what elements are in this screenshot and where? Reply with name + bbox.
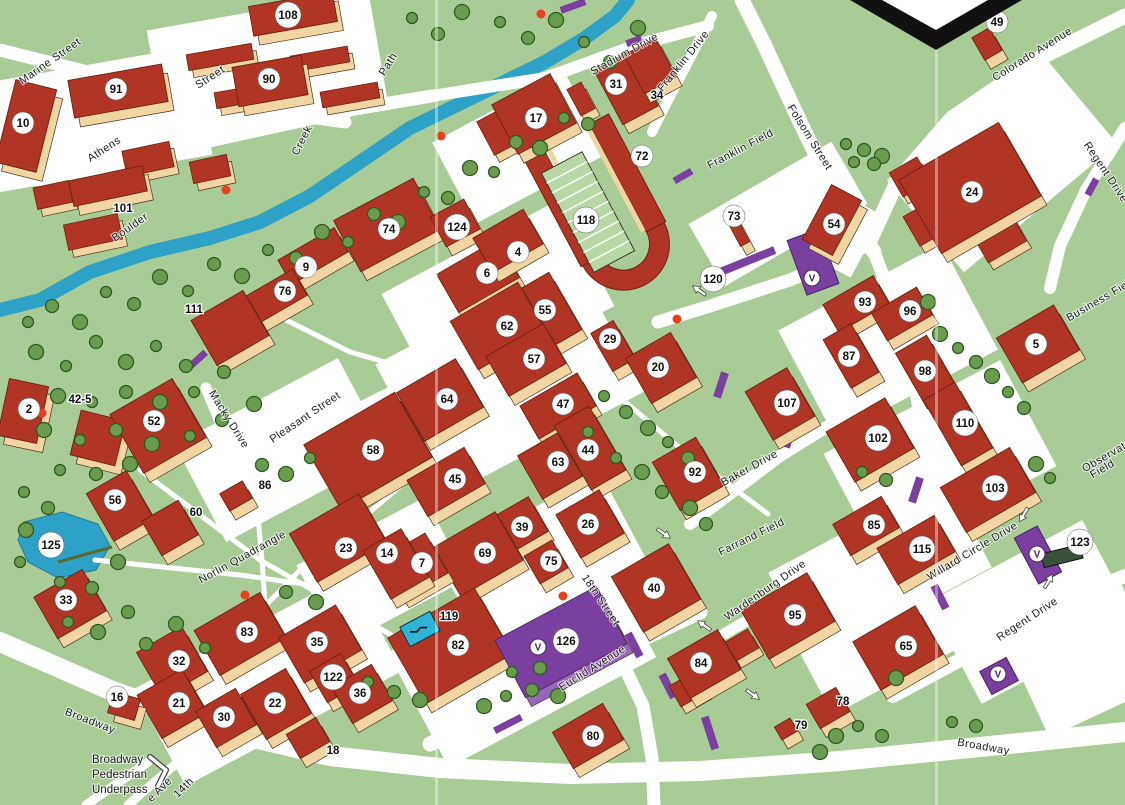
building-number-69: 69 — [479, 548, 492, 560]
building-number-54: 54 — [828, 219, 841, 231]
red-dot-marker — [222, 186, 231, 195]
tree-icon — [857, 467, 868, 478]
building-number-55: 55 — [539, 305, 552, 317]
building-number-47: 47 — [557, 399, 570, 411]
tree-icon — [368, 208, 381, 221]
building-number-20: 20 — [652, 362, 665, 374]
building-number-124: 124 — [447, 222, 467, 234]
building-number-79: 79 — [795, 720, 808, 732]
underpass-label-line: Underpass — [92, 784, 148, 796]
tree-icon — [218, 366, 231, 379]
building-number-29: 29 — [604, 334, 617, 346]
tree-icon — [73, 315, 88, 330]
building-number-75: 75 — [545, 556, 558, 568]
map-fold — [935, 0, 938, 805]
building-number-85: 85 — [868, 520, 881, 532]
tree-icon — [185, 431, 196, 442]
tree-icon — [841, 139, 852, 150]
tree-icon — [663, 437, 674, 448]
tree-icon — [101, 287, 112, 298]
tree-icon — [279, 467, 294, 482]
building-number-2: 2 — [26, 404, 32, 416]
building-number-83: 83 — [241, 627, 254, 639]
tree-icon — [970, 356, 983, 369]
tree-icon — [145, 437, 160, 452]
tree-icon — [620, 406, 633, 419]
building-number-103: 103 — [985, 483, 1004, 495]
tree-icon — [151, 341, 162, 352]
building-number-10: 10 — [17, 118, 30, 130]
tree-icon — [970, 720, 983, 733]
tree-icon — [200, 643, 211, 654]
red-dot-marker — [241, 591, 250, 600]
building-number-23: 23 — [340, 543, 353, 555]
building-number-24: 24 — [966, 187, 979, 199]
building-number-125: 125 — [41, 540, 61, 552]
tree-icon — [61, 361, 72, 372]
underpass-label-line: Pedestrian — [92, 769, 147, 781]
building-number-118: 118 — [577, 215, 596, 227]
tree-icon — [683, 501, 698, 516]
tree-icon — [23, 317, 34, 328]
tree-icon — [933, 327, 948, 342]
tree-icon — [169, 617, 184, 632]
tree-icon — [549, 13, 564, 28]
tree-icon — [247, 397, 262, 412]
building-number-26: 26 — [582, 519, 595, 531]
building-number-49: 49 — [991, 17, 1004, 29]
tree-icon — [42, 502, 55, 515]
building-number-35: 35 — [311, 637, 324, 649]
tree-icon — [37, 423, 52, 438]
tree-icon — [858, 144, 871, 157]
tree-icon — [29, 345, 44, 360]
building-number-108: 108 — [278, 10, 298, 22]
tree-icon — [305, 453, 316, 464]
tree-icon — [880, 474, 893, 487]
building-number-33: 33 — [60, 595, 73, 607]
tree-icon — [128, 298, 141, 311]
tree-icon — [19, 487, 30, 498]
parking-v-letter: V — [1034, 550, 1041, 561]
building-number-40: 40 — [648, 583, 661, 595]
building-number-98: 98 — [919, 366, 932, 378]
tree-icon — [876, 730, 889, 743]
tree-icon — [849, 157, 860, 168]
tree-icon — [641, 421, 656, 436]
tree-icon — [463, 161, 478, 176]
tree-icon — [75, 435, 86, 446]
tree-icon — [189, 387, 200, 398]
tree-icon — [90, 336, 103, 349]
parking-v-letter: V — [995, 670, 1002, 681]
building-number-78: 78 — [837, 696, 850, 708]
tree-icon — [122, 606, 135, 619]
red-dot-marker — [559, 592, 568, 601]
tree-icon — [86, 582, 99, 595]
tree-icon — [442, 192, 455, 205]
tree-icon — [208, 258, 221, 271]
tree-icon — [15, 557, 26, 568]
tree-icon — [583, 427, 594, 438]
tree-icon — [180, 360, 193, 373]
tree-icon — [533, 141, 548, 156]
building-number-101: 101 — [113, 203, 133, 215]
tree-icon — [91, 625, 106, 640]
building-number-63: 63 — [552, 457, 565, 469]
building-number-123: 123 — [1070, 537, 1089, 549]
tree-icon — [599, 391, 610, 402]
red-dot-marker — [673, 315, 682, 324]
tree-icon — [700, 518, 713, 531]
tree-icon — [153, 270, 168, 285]
map-fold — [435, 0, 438, 805]
campus-map-canvas: VVVV109190108101741241731347349245497611… — [0, 0, 1125, 805]
tree-icon — [407, 13, 418, 24]
tree-icon — [868, 158, 881, 171]
building-number-7: 7 — [419, 558, 425, 570]
building-number-62: 62 — [501, 321, 514, 333]
tree-icon — [419, 187, 430, 198]
tree-icon — [119, 355, 134, 370]
tree-icon — [235, 269, 250, 284]
red-dot-marker — [537, 10, 546, 19]
building-number-87: 87 — [843, 351, 856, 363]
tree-icon — [388, 686, 401, 699]
tree-icon — [889, 671, 904, 686]
tree-icon — [110, 424, 123, 437]
tree-icon — [46, 300, 59, 313]
building-number-31: 31 — [610, 79, 623, 91]
tree-icon — [343, 237, 354, 248]
tree-icon — [947, 717, 958, 728]
building-number-73: 73 — [728, 211, 741, 223]
building-number-21: 21 — [173, 698, 186, 710]
tree-icon — [263, 245, 274, 256]
building-number-110: 110 — [956, 418, 975, 430]
building-number-122: 122 — [323, 672, 342, 684]
tree-icon — [579, 37, 590, 48]
building-number-102: 102 — [868, 433, 887, 445]
tree-icon — [140, 638, 153, 651]
building-number-86: 86 — [259, 480, 272, 492]
building-number-45: 45 — [449, 474, 462, 486]
building-number-90: 90 — [263, 74, 276, 86]
building-number-60: 60 — [190, 507, 203, 519]
building-number-64: 64 — [441, 394, 454, 406]
building-number-17: 17 — [530, 113, 543, 125]
tree-icon — [256, 459, 269, 472]
building-number-120: 120 — [703, 274, 722, 286]
building-number-56: 56 — [109, 495, 122, 507]
tree-icon — [111, 555, 126, 570]
tree-icon — [55, 577, 66, 588]
building-number-74: 74 — [383, 224, 396, 236]
building-number-39: 39 — [516, 522, 529, 534]
tree-icon — [315, 225, 330, 240]
tree-icon — [813, 745, 828, 760]
building-number-95: 95 — [789, 610, 802, 622]
tree-icon — [477, 699, 492, 714]
tree-icon — [526, 684, 539, 697]
underpass-label-line: Broadway — [92, 754, 143, 766]
tree-icon — [455, 5, 470, 20]
building-number-30: 30 — [218, 712, 231, 724]
building-number-6: 6 — [484, 268, 490, 280]
building-number-92: 92 — [689, 467, 702, 479]
tree-icon — [522, 32, 535, 45]
building-number-4: 4 — [515, 247, 522, 259]
building-number-57: 57 — [528, 354, 541, 366]
building-number-82: 82 — [452, 640, 465, 652]
tree-icon — [1003, 387, 1014, 398]
tree-icon — [63, 617, 74, 628]
building-number-107: 107 — [777, 398, 796, 410]
tree-icon — [153, 395, 168, 410]
building-number-93: 93 — [859, 297, 872, 309]
tree-icon — [309, 595, 324, 610]
tree-icon — [953, 343, 964, 354]
tree-icon — [51, 389, 66, 404]
tree-icon — [120, 386, 133, 399]
campus-map: VVVV109190108101741241731347349245497611… — [0, 0, 1125, 805]
building-number-16: 16 — [111, 692, 124, 704]
building-number-84: 84 — [695, 658, 708, 670]
building-number-18: 18 — [327, 745, 340, 757]
building-number-36: 36 — [354, 688, 367, 700]
building-number-32: 32 — [173, 656, 186, 668]
tree-icon — [280, 586, 293, 599]
building-number-126: 126 — [556, 636, 575, 648]
building-number-52: 52 — [148, 416, 161, 428]
building-number-65: 65 — [900, 641, 913, 653]
tree-icon — [123, 457, 138, 472]
tree-icon — [534, 662, 547, 675]
tree-icon — [853, 721, 864, 732]
building-number-119: 119 — [440, 611, 459, 623]
parking-v-letter: V — [809, 274, 816, 285]
tree-icon — [631, 21, 646, 36]
building-number-76: 76 — [279, 286, 292, 298]
tree-icon — [183, 286, 194, 297]
building-number-72: 72 — [636, 151, 649, 163]
building-number-22: 22 — [269, 698, 282, 710]
building-number-96: 96 — [904, 306, 917, 318]
tree-icon — [501, 691, 512, 702]
building-number-44: 44 — [582, 445, 595, 457]
tree-icon — [635, 465, 650, 480]
tree-icon — [489, 167, 500, 178]
tree-icon — [55, 465, 66, 476]
tree-icon — [985, 369, 1000, 384]
tree-icon — [656, 486, 669, 499]
tree-icon — [90, 468, 103, 481]
tree-icon — [495, 17, 506, 28]
tree-icon — [582, 118, 595, 131]
building-number-58: 58 — [367, 445, 380, 457]
tree-icon — [510, 136, 523, 149]
tree-icon — [19, 523, 34, 538]
tree-icon — [921, 295, 936, 310]
tree-icon — [829, 729, 844, 744]
building-number-5: 5 — [1033, 339, 1040, 351]
building-number-42-5: 42-5 — [68, 394, 92, 406]
tree-icon — [559, 113, 570, 124]
tree-icon — [1045, 473, 1056, 484]
parking-v-letter: V — [535, 643, 542, 654]
building-number-80: 80 — [587, 731, 600, 743]
tree-icon — [1029, 457, 1044, 472]
building-number-111: 111 — [185, 304, 204, 316]
building-number-14: 14 — [381, 548, 394, 560]
building-number-9: 9 — [303, 262, 309, 274]
building-number-91: 91 — [110, 84, 123, 96]
tree-icon — [1018, 402, 1031, 415]
tree-icon — [507, 667, 518, 678]
tree-icon — [413, 693, 428, 708]
building-number-115: 115 — [913, 544, 932, 556]
tree-icon — [611, 453, 622, 464]
